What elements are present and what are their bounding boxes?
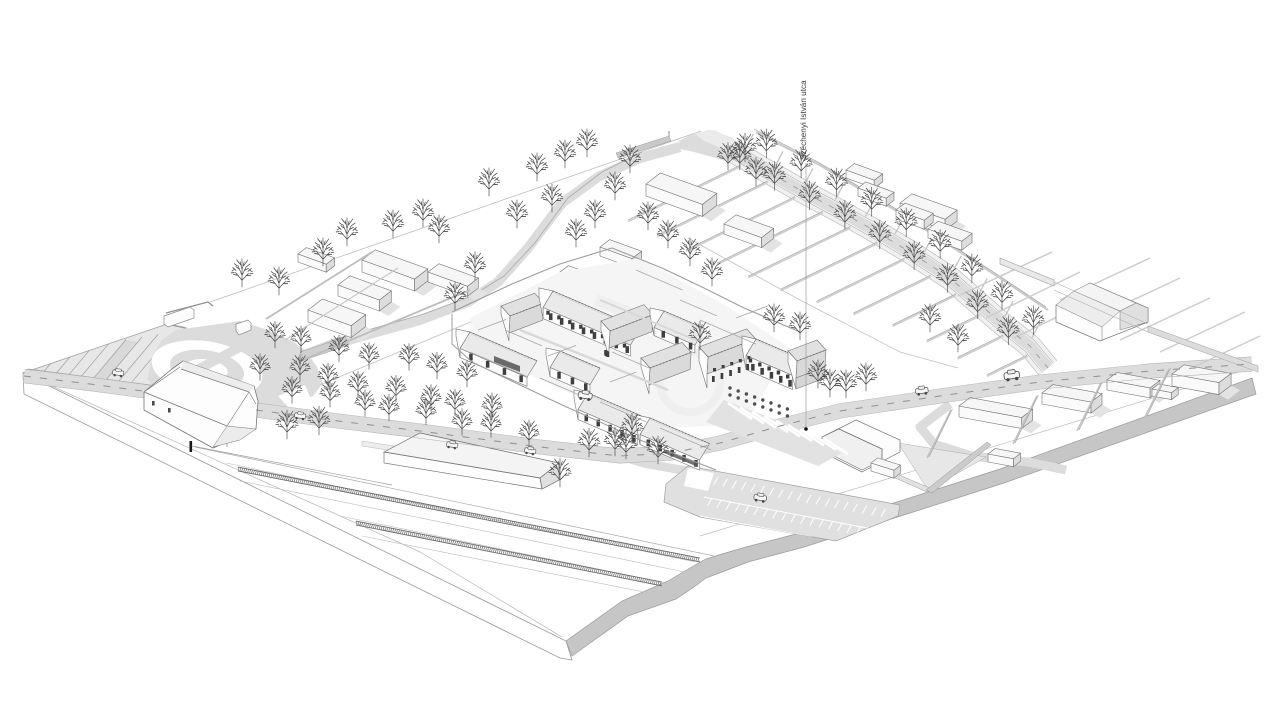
svg-text:Széchenyi István utca: Széchenyi István utca [799, 80, 808, 160]
